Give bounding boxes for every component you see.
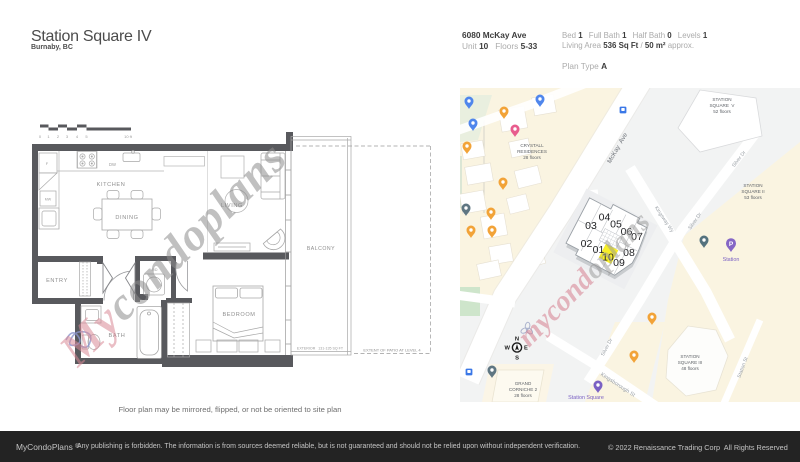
- svg-text:5: 5: [85, 134, 88, 139]
- svg-text:CRYSTALL: CRYSTALL: [520, 143, 544, 148]
- svg-text:P: P: [729, 241, 734, 248]
- svg-text:53 floors: 53 floors: [744, 195, 762, 200]
- svg-text:0: 0: [39, 134, 42, 139]
- svg-text:3: 3: [66, 134, 69, 139]
- svg-text:STATION: STATION: [712, 97, 731, 102]
- svg-text:EXTENT OF PATIO AT LEVEL 4: EXTENT OF PATIO AT LEVEL 4: [363, 348, 421, 353]
- svg-text:ENTRY: ENTRY: [46, 278, 68, 284]
- svg-text:52 floors: 52 floors: [713, 109, 731, 114]
- svg-text:KITCHEN: KITCHEN: [97, 182, 126, 188]
- svg-text:Station: Station: [723, 257, 740, 263]
- svg-text:1: 1: [47, 134, 50, 139]
- svg-text:BALCONY: BALCONY: [307, 246, 335, 252]
- svg-text:DINING: DINING: [115, 215, 138, 221]
- svg-text:MW: MW: [45, 198, 52, 202]
- svg-text:2: 2: [57, 134, 60, 139]
- svg-text:04: 04: [599, 212, 611, 224]
- svg-text:SQUARE V: SQUARE V: [709, 103, 735, 108]
- svg-text:CORNICHE 2: CORNICHE 2: [509, 387, 538, 392]
- svg-text:BEDROOM: BEDROOM: [222, 312, 255, 318]
- svg-text:DW: DW: [109, 162, 116, 167]
- svg-text:48 floors: 48 floors: [681, 366, 699, 371]
- svg-text:SQUARE III: SQUARE III: [678, 360, 703, 365]
- svg-text:4: 4: [76, 134, 79, 139]
- svg-text:GRAND: GRAND: [515, 381, 532, 386]
- svg-text:10 ft: 10 ft: [124, 134, 133, 139]
- svg-text:03: 03: [585, 220, 597, 232]
- svg-text:28 floors: 28 floors: [514, 393, 532, 398]
- svg-text:STATION: STATION: [680, 354, 699, 359]
- svg-text:EXTERIOR 131-135 SQ FT: EXTERIOR 131-135 SQ FT: [297, 347, 344, 351]
- svg-text:Station Square: Station Square: [568, 395, 604, 401]
- svg-text:RESIDENCES: RESIDENCES: [517, 149, 547, 154]
- svg-text:SQUARE II: SQUARE II: [741, 189, 764, 194]
- svg-text:28 floors: 28 floors: [523, 155, 541, 160]
- svg-text:S: S: [515, 355, 519, 361]
- svg-text:W: W: [505, 346, 511, 352]
- svg-text:STATION: STATION: [743, 183, 762, 188]
